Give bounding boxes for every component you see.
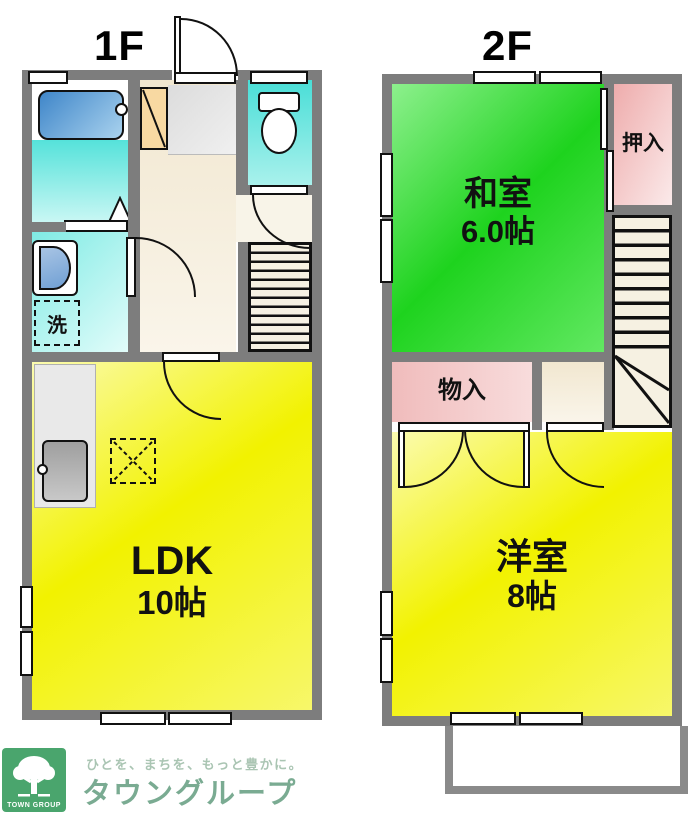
wall-1f-bath-hall [128, 80, 140, 362]
wall-1f-right [312, 70, 322, 720]
vanity-basin [39, 246, 71, 290]
wall-1f-hall-toilet [236, 80, 248, 195]
stairs-1f-treads [251, 245, 309, 349]
washer-label: 洗 [47, 309, 67, 338]
window-2f-washitsu-left-2 [380, 219, 393, 283]
window-1f-ldk-left-1 [20, 586, 33, 628]
washitsu-label: 和室 6.0帖 [398, 165, 598, 260]
entrance-threshold [174, 72, 236, 84]
youshitsu-name: 洋室 [496, 536, 568, 577]
hall-floor-2f [542, 362, 604, 422]
oshiire-slide-door-2 [606, 150, 614, 212]
ldk-door-leaf [162, 352, 220, 362]
table-x-mark [112, 440, 154, 482]
dining-table-mark [110, 438, 156, 484]
wall-2f-monoire-hall [532, 362, 542, 430]
window-1f-ldk-bottom-2 [168, 712, 232, 725]
shoe-cabinet [140, 87, 168, 150]
window-2f-youshitsu-left-1 [380, 591, 393, 636]
window-2f-youshitsu-bottom-2 [519, 712, 583, 725]
youshitsu-door-leaf [546, 422, 604, 432]
window-1f-ldk-left-2 [20, 631, 33, 676]
floorplan-canvas: 1F 2F 洗 [0, 0, 700, 813]
wall-2f-washitsu-bottom [392, 352, 614, 362]
wall-2f-oshiire-bottom [604, 205, 672, 215]
window-1f-ldk-bottom-1 [100, 712, 166, 725]
bathtub [38, 90, 124, 140]
bathroom-slide-door [64, 220, 128, 232]
entrance-door-leaf [174, 16, 181, 76]
bathtub-faucet [115, 103, 128, 116]
town-group-logo: TOWN GROUP [2, 748, 66, 812]
youshitsu-size: 8帖 [507, 578, 557, 615]
window-1f-toilet-top [250, 71, 308, 84]
washitsu-size: 6.0帖 [461, 214, 535, 250]
window-2f-top-2 [539, 71, 602, 84]
wall-2f-right [672, 74, 682, 726]
washroom-door-leaf [126, 237, 136, 297]
window-2f-youshitsu-bottom-1 [450, 712, 516, 725]
ldk-label: LDK 10帖 [82, 535, 262, 625]
stairs-2f-winder [615, 218, 669, 425]
toilet-door-leaf [250, 185, 308, 195]
stairs-2f [612, 215, 672, 428]
floor1-title: 1F [94, 22, 145, 70]
genkan-floor [168, 85, 236, 155]
window-2f-top-1 [473, 71, 536, 84]
floor2-title: 2F [482, 22, 533, 70]
window-2f-washitsu-left-1 [380, 153, 393, 217]
washer-space: 洗 [34, 300, 80, 346]
shoe-cabinet-diagonal [142, 89, 166, 148]
monoire-label: 物入 [392, 362, 532, 420]
toilet-bowl [261, 108, 297, 154]
kitchen-faucet [37, 464, 48, 475]
kitchen-sink [42, 440, 88, 502]
oshiire-slide-door-1 [600, 88, 608, 150]
window-1f-bath-top [28, 71, 68, 84]
washitsu-name: 和室 [464, 175, 532, 214]
ldk-name: LDK [131, 538, 213, 584]
vanity-sink [32, 240, 78, 296]
monoire-door-leaf-left [398, 430, 405, 488]
stairs-1f [248, 242, 312, 352]
monoire-door-leaf-right [523, 430, 530, 488]
tree-icon [10, 752, 58, 798]
logo-caption: TOWN GROUP [2, 802, 66, 809]
oshiire-label: 押入 [614, 84, 672, 205]
wall-1f-bath-wash [32, 222, 66, 232]
youshitsu-label: 洋室 8帖 [432, 528, 632, 623]
ldk-size: 10帖 [137, 584, 207, 622]
footer-brand: タウングループ [82, 770, 297, 812]
window-2f-youshitsu-left-2 [380, 638, 393, 683]
wall-1f-stairs-left [238, 242, 248, 352]
balcony [445, 726, 688, 794]
entrance-door-arc [181, 18, 238, 76]
